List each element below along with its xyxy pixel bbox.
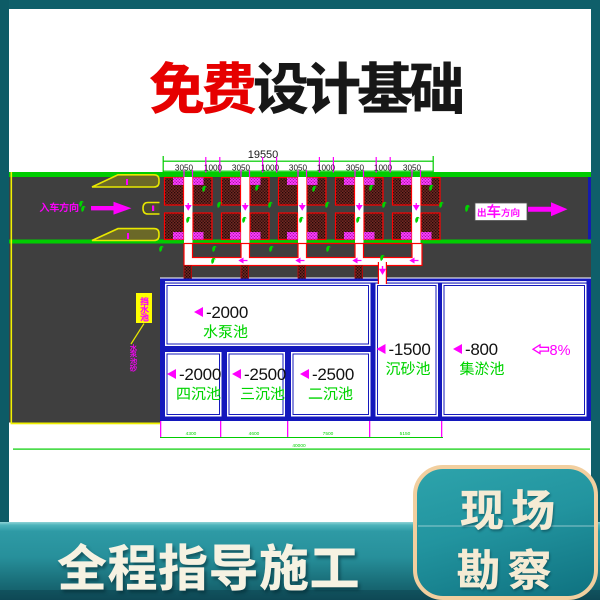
svg-text:7500: 7500 xyxy=(323,431,334,437)
svg-text:入车方向: 入车方向 xyxy=(40,199,80,214)
svg-text:-800: -800 xyxy=(465,340,498,359)
svg-text:4300: 4300 xyxy=(186,431,197,437)
svg-text:1000: 1000 xyxy=(374,164,393,173)
svg-text:-2500: -2500 xyxy=(312,365,354,384)
svg-text:水泵池砂: 水泵池砂 xyxy=(128,343,139,372)
svg-text:1000: 1000 xyxy=(261,164,280,173)
svg-text:四沉池: 四沉池 xyxy=(176,383,221,404)
svg-text:-2000: -2000 xyxy=(206,303,248,322)
svg-text:-1500: -1500 xyxy=(389,340,431,359)
svg-text:4600: 4600 xyxy=(249,431,260,437)
svg-text:8%: 8% xyxy=(550,343,571,359)
svg-text:沉砂池: 沉砂池 xyxy=(386,358,431,379)
svg-text:1000: 1000 xyxy=(317,164,336,173)
svg-text:40000: 40000 xyxy=(292,443,306,449)
svg-text:水泵池: 水泵池 xyxy=(203,321,248,342)
svg-text:集淤池: 集淤池 xyxy=(460,358,505,379)
svg-text:-2500: -2500 xyxy=(244,365,286,384)
svg-text:1000: 1000 xyxy=(204,164,223,173)
svg-text:二沉池: 二沉池 xyxy=(308,383,353,404)
svg-text:挡水池: 挡水池 xyxy=(139,296,151,322)
svg-text:5150: 5150 xyxy=(400,431,411,437)
svg-text:三沉池: 三沉池 xyxy=(240,383,285,404)
svg-text:-2000: -2000 xyxy=(179,365,221,384)
